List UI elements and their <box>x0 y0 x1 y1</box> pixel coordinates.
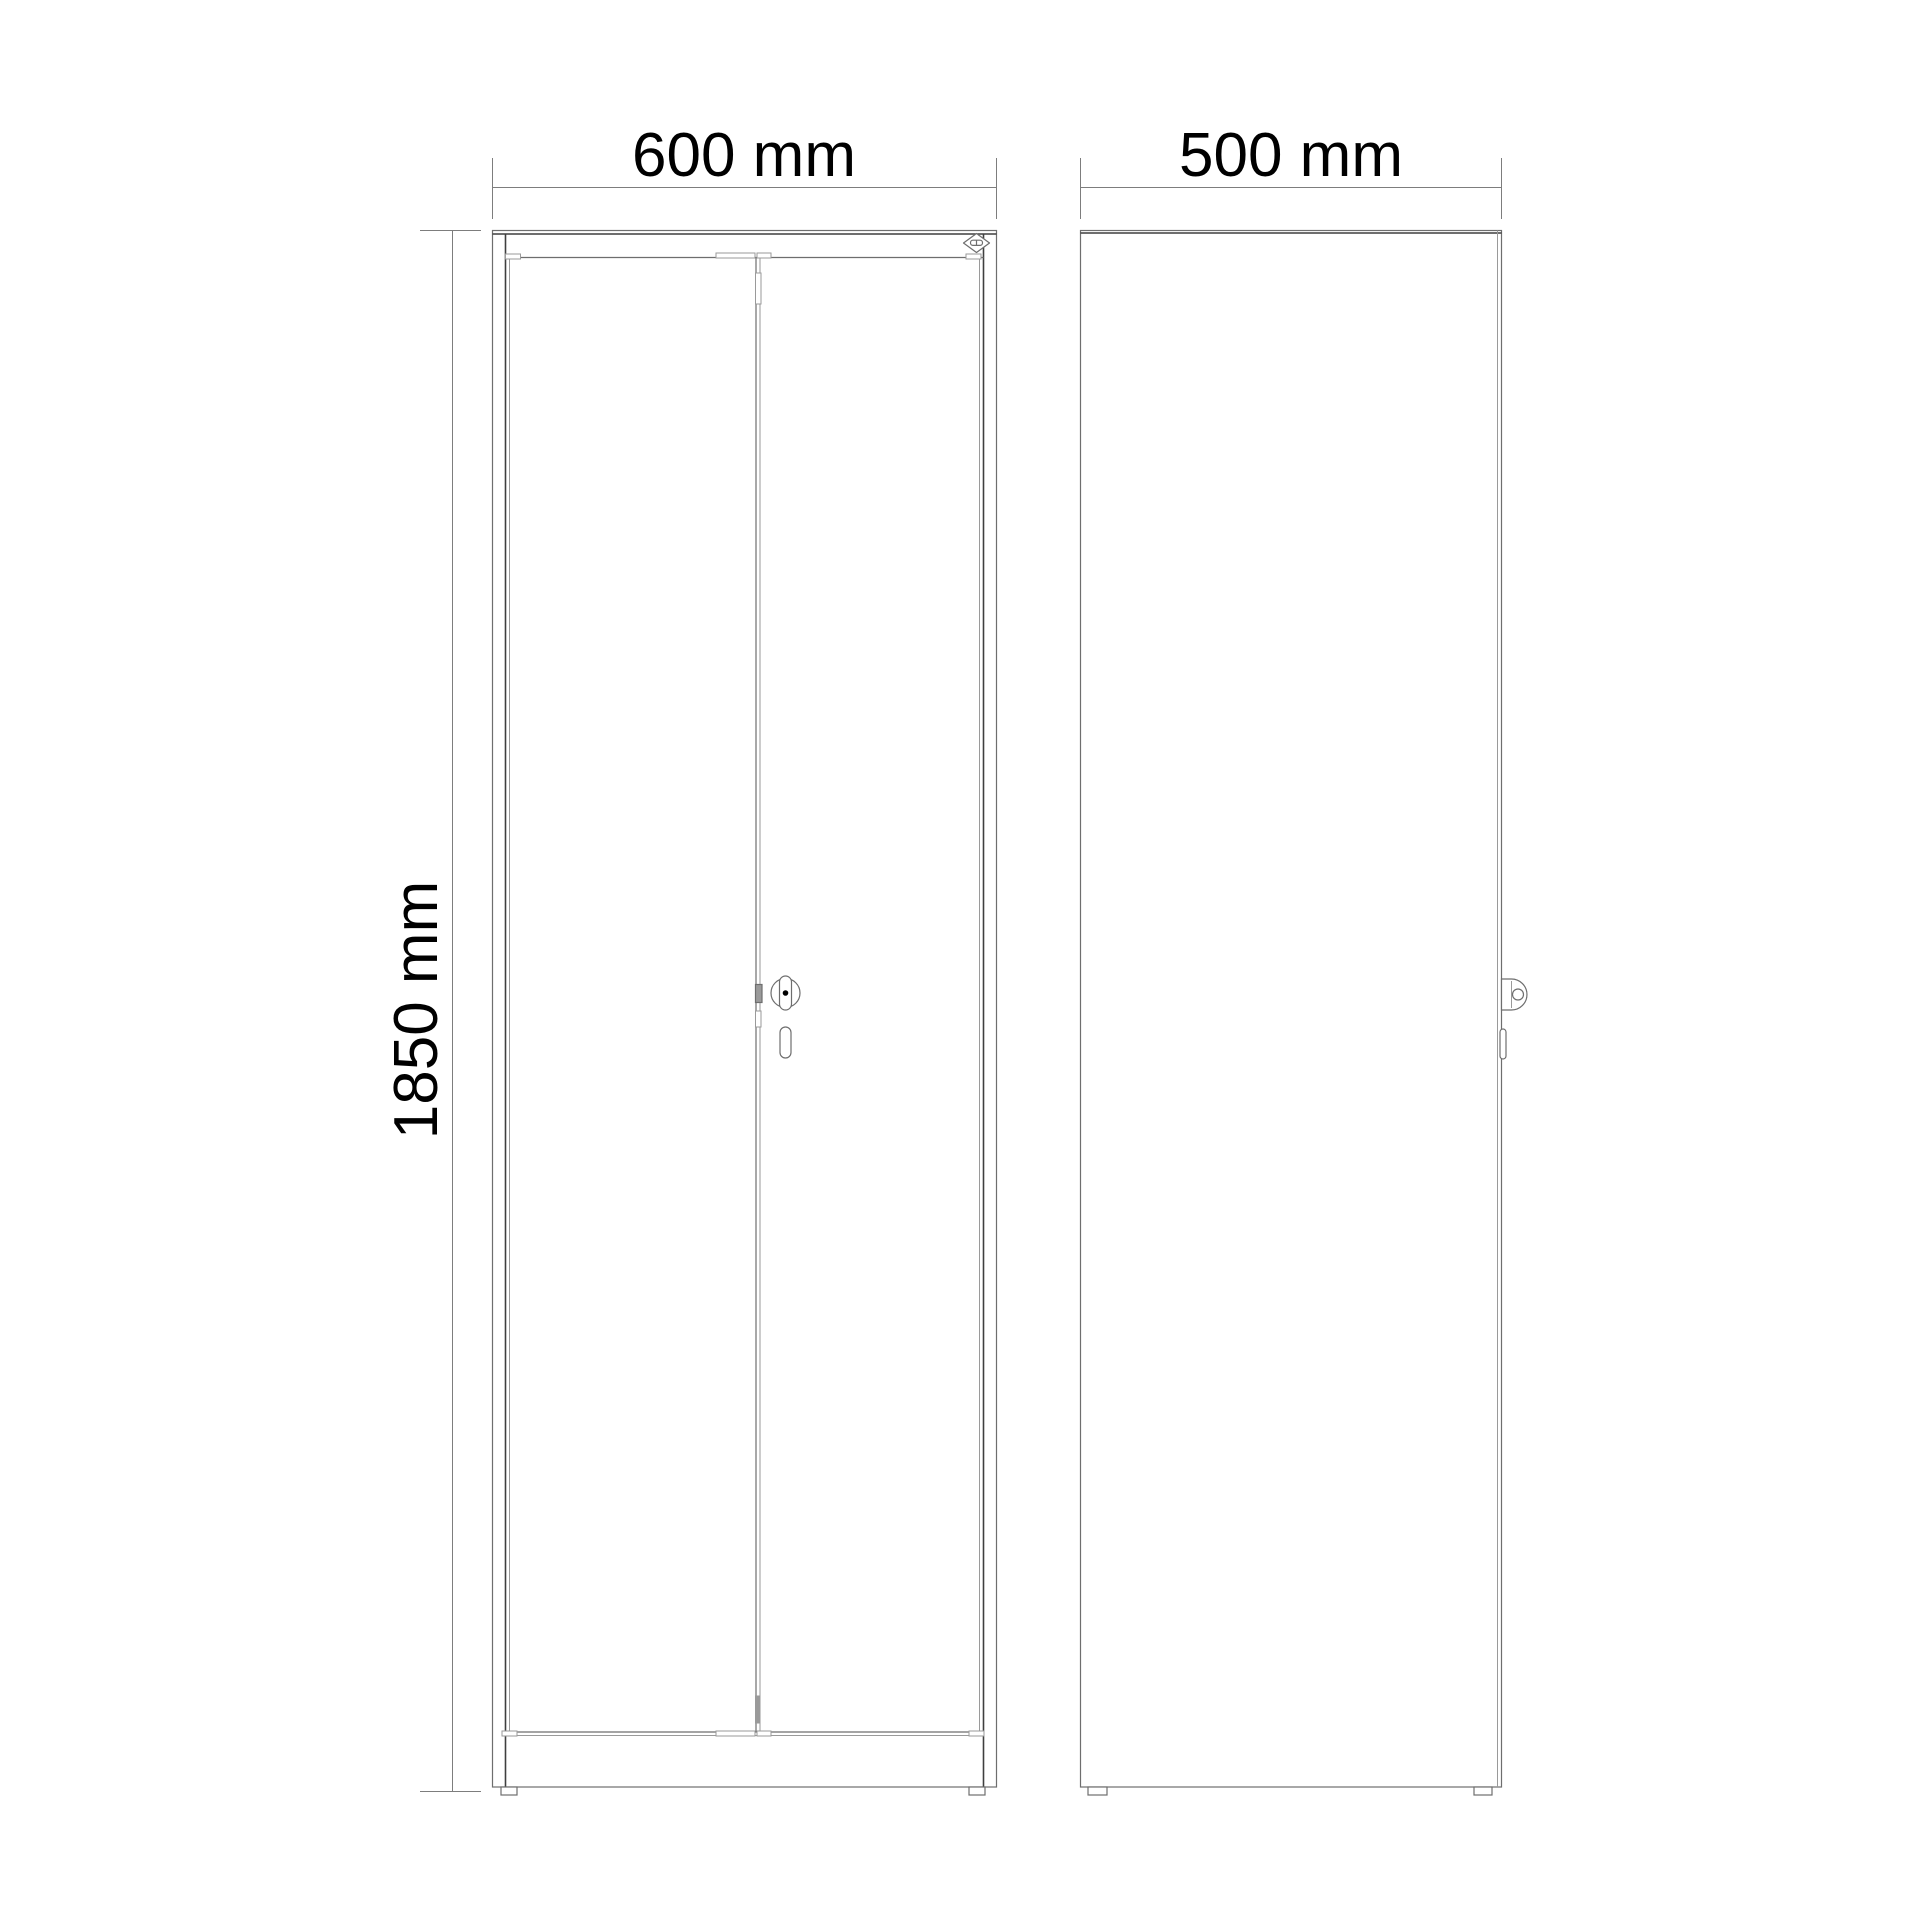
center-latch-lower <box>756 1011 762 1027</box>
width-dimension-label: 600 mm <box>632 121 856 190</box>
hinge-plate-icon <box>716 253 755 258</box>
hinge-plate-icon <box>757 1731 771 1736</box>
side-lock <box>1500 979 1527 1059</box>
locker-dimension-drawing: 600 mm 500 mm 1850 mm <box>0 0 1920 1920</box>
depth-dimension: 500 mm <box>1081 121 1502 219</box>
height-dimension: 1850 mm <box>382 231 481 1792</box>
door-corner-tab <box>502 1731 517 1736</box>
hinge-plate-icon <box>716 1731 755 1736</box>
technical-drawing-page: 600 mm 500 mm 1850 mm <box>0 0 1920 1920</box>
lock-knob-hole-icon <box>1513 989 1524 1000</box>
key-slot-icon <box>780 1027 791 1058</box>
height-dimension-label: 1850 mm <box>382 881 451 1139</box>
door-corner-tab <box>506 254 521 259</box>
depth-dimension-label: 500 mm <box>1179 121 1403 190</box>
center-latch-upper <box>756 985 763 1003</box>
hinge-pin-icon <box>756 1696 761 1723</box>
door-corner-tab <box>969 1731 984 1736</box>
front-right-foot <box>969 1787 985 1795</box>
side-cabinet-outline <box>1081 231 1502 1788</box>
front-cabinet-outline <box>493 231 997 1788</box>
front-view <box>493 231 997 1796</box>
lock-keyhole-dot-icon <box>783 990 789 996</box>
hinge-pin-icon <box>756 273 762 304</box>
hinge-plate-icon <box>757 253 771 258</box>
side-left-foot <box>1088 1787 1107 1795</box>
side-right-foot <box>1474 1787 1492 1795</box>
width-dimension: 600 mm <box>493 121 997 219</box>
side-view <box>1081 231 1527 1796</box>
door-corner-tab <box>966 254 981 259</box>
side-key-slot-icon <box>1500 1029 1506 1059</box>
front-left-foot <box>501 1787 517 1795</box>
